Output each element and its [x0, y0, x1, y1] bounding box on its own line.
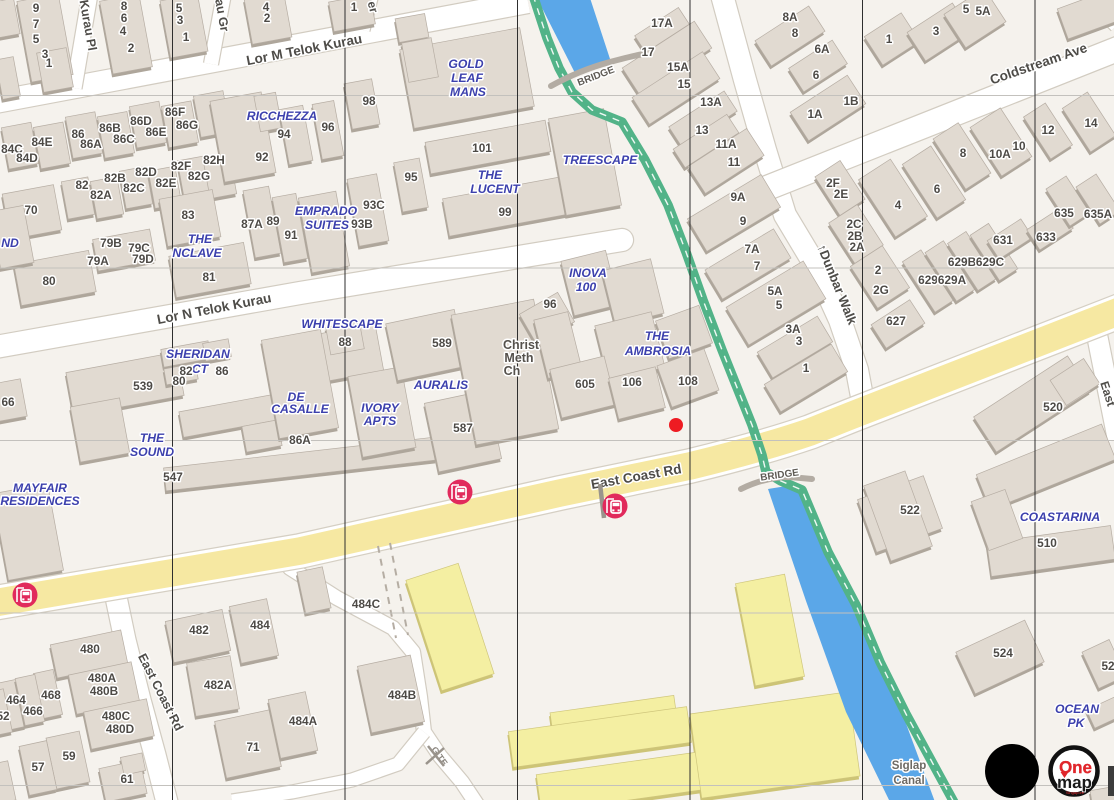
svg-text:84E: 84E — [32, 135, 53, 149]
svg-text:547: 547 — [163, 470, 183, 484]
svg-text:1B: 1B — [843, 94, 858, 108]
svg-text:INOVA: INOVA — [569, 266, 607, 280]
svg-text:THE: THE — [478, 168, 503, 182]
svg-text:3: 3 — [796, 334, 803, 348]
svg-text:THE: THE — [140, 431, 165, 445]
svg-text:8: 8 — [960, 146, 967, 160]
svg-text:480A: 480A — [88, 671, 117, 685]
svg-text:79D: 79D — [132, 252, 154, 266]
svg-text:5: 5 — [776, 298, 783, 312]
svg-text:COASTARINA: COASTARINA — [1020, 510, 1100, 524]
svg-text:605: 605 — [575, 377, 595, 391]
svg-text:2G: 2G — [873, 283, 889, 297]
svg-text:5A: 5A — [767, 284, 783, 298]
svg-text:17: 17 — [641, 45, 655, 59]
svg-text:82A: 82A — [90, 188, 112, 202]
svg-text:84D: 84D — [16, 151, 38, 165]
svg-text:2: 2 — [264, 11, 271, 25]
svg-text:89: 89 — [266, 214, 280, 228]
svg-text:589: 589 — [432, 336, 452, 350]
svg-text:484C: 484C — [352, 597, 381, 611]
svg-text:WHITESCAPE: WHITESCAPE — [301, 317, 383, 331]
svg-text:1: 1 — [351, 0, 358, 14]
svg-text:9A: 9A — [730, 190, 746, 204]
svg-text:11A: 11A — [716, 137, 737, 151]
svg-text:APTS: APTS — [363, 414, 397, 428]
svg-text:4: 4 — [120, 24, 127, 38]
svg-text:EMPRADO: EMPRADO — [295, 204, 358, 218]
svg-text:IVORY: IVORY — [361, 401, 401, 415]
svg-text:6: 6 — [121, 11, 128, 25]
svg-text:Meth: Meth — [504, 351, 533, 365]
svg-text:91: 91 — [284, 228, 298, 242]
svg-text:82H: 82H — [203, 153, 225, 167]
svg-text:83: 83 — [181, 208, 195, 222]
svg-text:15: 15 — [677, 77, 691, 91]
svg-text:11: 11 — [728, 155, 741, 169]
svg-text:THE: THE — [645, 329, 670, 343]
svg-text:82: 82 — [75, 178, 89, 192]
svg-text:95: 95 — [404, 170, 418, 184]
svg-text:1: 1 — [183, 30, 190, 44]
svg-text:94: 94 — [277, 127, 291, 141]
svg-text:108: 108 — [678, 374, 698, 388]
svg-text:86: 86 — [215, 364, 229, 378]
svg-text:LUCENT: LUCENT — [470, 182, 521, 196]
svg-text:12: 12 — [1041, 123, 1055, 137]
svg-text:629: 629 — [918, 273, 938, 287]
svg-text:14: 14 — [1084, 116, 1098, 130]
svg-text:86A: 86A — [80, 137, 102, 151]
svg-text:88: 88 — [338, 335, 352, 349]
svg-text:MANS: MANS — [450, 85, 486, 99]
svg-text:468: 468 — [41, 688, 61, 702]
svg-text:OCEAN: OCEAN — [1055, 702, 1100, 716]
svg-text:80: 80 — [172, 374, 186, 388]
svg-text:SOUND: SOUND — [130, 445, 174, 459]
svg-text:631: 631 — [993, 233, 1013, 247]
svg-text:627: 627 — [886, 314, 906, 328]
svg-text:1: 1 — [803, 361, 810, 375]
svg-text:510: 510 — [1037, 536, 1057, 550]
svg-text:6: 6 — [813, 68, 820, 82]
svg-text:629B: 629B — [948, 255, 976, 269]
svg-text:587: 587 — [453, 421, 473, 435]
svg-text:7: 7 — [754, 259, 761, 273]
svg-text:RICCHEZZA: RICCHEZZA — [247, 109, 317, 123]
svg-text:52: 52 — [1101, 659, 1114, 673]
svg-text:Siglap: Siglap — [892, 760, 927, 772]
svg-text:6A: 6A — [814, 42, 830, 56]
svg-text:17A: 17A — [651, 16, 673, 30]
svg-text:2: 2 — [875, 263, 882, 277]
svg-text:2: 2 — [128, 41, 135, 55]
svg-text:5A: 5A — [975, 4, 991, 18]
svg-text:Singapore: Singapore — [1066, 790, 1085, 795]
svg-text:66: 66 — [1, 395, 15, 409]
svg-text:59: 59 — [62, 749, 76, 763]
svg-text:Christ: Christ — [503, 338, 540, 352]
svg-text:1A: 1A — [807, 107, 823, 121]
svg-text:5: 5 — [33, 32, 40, 46]
svg-text:CASALLE: CASALLE — [271, 402, 329, 416]
svg-text:1: 1 — [886, 32, 893, 46]
svg-text:93C: 93C — [363, 198, 385, 212]
svg-text:86F: 86F — [165, 105, 185, 119]
svg-text:THE: THE — [188, 232, 213, 246]
svg-text:79B: 79B — [100, 236, 122, 250]
svg-text:13: 13 — [695, 123, 709, 137]
svg-text:86G: 86G — [176, 118, 198, 132]
svg-text:TREESCAPE: TREESCAPE — [563, 153, 638, 167]
svg-text:635: 635 — [1054, 206, 1074, 220]
svg-text:484: 484 — [250, 618, 270, 632]
svg-text:57: 57 — [31, 760, 45, 774]
svg-text:87A: 87A — [241, 217, 263, 231]
svg-text:NCLAVE: NCLAVE — [172, 246, 222, 260]
svg-text:79A: 79A — [87, 254, 109, 268]
svg-text:61: 61 — [120, 772, 134, 786]
svg-text:71: 71 — [246, 740, 260, 754]
svg-text:MAYFAIR: MAYFAIR — [13, 481, 67, 495]
svg-text:524: 524 — [993, 646, 1013, 660]
svg-text:52: 52 — [0, 709, 10, 723]
svg-text:9: 9 — [33, 1, 40, 15]
svg-text:3: 3 — [177, 13, 184, 27]
svg-text:101: 101 — [472, 141, 492, 155]
svg-text:GOLD: GOLD — [448, 57, 483, 71]
svg-text:5: 5 — [963, 2, 970, 16]
svg-text:480C: 480C — [102, 709, 131, 723]
svg-text:99: 99 — [498, 205, 512, 219]
svg-text:81: 81 — [202, 270, 216, 284]
svg-text:86C: 86C — [113, 132, 135, 146]
svg-text:13A: 13A — [700, 95, 722, 109]
svg-text:482A: 482A — [204, 678, 233, 692]
svg-text:629C: 629C — [976, 255, 1005, 269]
svg-text:6: 6 — [934, 182, 941, 196]
svg-text:96: 96 — [321, 120, 335, 134]
svg-text:2A: 2A — [849, 240, 865, 254]
svg-text:480D: 480D — [106, 722, 135, 736]
svg-text:86A: 86A — [289, 433, 311, 447]
svg-text:ND: ND — [1, 236, 19, 250]
svg-text:7: 7 — [33, 17, 40, 31]
svg-text:635A: 635A — [1084, 207, 1113, 221]
svg-text:96: 96 — [543, 297, 557, 311]
svg-text:480B: 480B — [90, 684, 118, 698]
svg-text:4: 4 — [895, 198, 902, 212]
svg-text:15A: 15A — [667, 60, 689, 74]
svg-text:484B: 484B — [388, 688, 416, 702]
svg-text:100: 100 — [576, 280, 597, 294]
svg-text:8A: 8A — [782, 10, 798, 24]
svg-text:RESIDENCES: RESIDENCES — [0, 494, 79, 508]
svg-text:82D: 82D — [135, 165, 157, 179]
svg-text:82E: 82E — [156, 176, 177, 190]
svg-text:633: 633 — [1036, 230, 1056, 244]
svg-text:86E: 86E — [146, 125, 167, 139]
svg-text:Canal: Canal — [893, 775, 924, 787]
svg-text:SHERIDAN: SHERIDAN — [166, 347, 231, 361]
svg-text:98: 98 — [362, 94, 376, 108]
svg-text:1: 1 — [46, 56, 53, 70]
svg-text:8: 8 — [792, 26, 799, 40]
svg-text:Ch: Ch — [504, 364, 521, 378]
svg-text:10A: 10A — [989, 147, 1011, 161]
svg-text:92: 92 — [255, 150, 269, 164]
svg-text:106: 106 — [622, 375, 642, 389]
svg-text:10: 10 — [1012, 139, 1026, 153]
svg-text:520: 520 — [1043, 400, 1063, 414]
svg-text:484A: 484A — [289, 714, 318, 728]
svg-text:3: 3 — [933, 24, 940, 38]
svg-text:82C: 82C — [123, 181, 145, 195]
svg-text:82G: 82G — [188, 169, 210, 183]
svg-text:AMBROSIA: AMBROSIA — [624, 344, 691, 358]
svg-text:93B: 93B — [351, 217, 373, 231]
svg-text:466: 466 — [23, 704, 43, 718]
svg-text:629A: 629A — [938, 273, 967, 287]
svg-text:80: 80 — [42, 274, 56, 288]
svg-text:LEAF: LEAF — [451, 71, 483, 85]
svg-text:CT: CT — [192, 362, 210, 376]
svg-text:9: 9 — [740, 214, 747, 228]
svg-text:2E: 2E — [834, 187, 849, 201]
svg-text:480: 480 — [80, 642, 100, 656]
svg-text:AURALIS: AURALIS — [413, 378, 468, 392]
svg-text:539: 539 — [133, 379, 153, 393]
svg-text:SUITES: SUITES — [305, 218, 349, 232]
svg-text:7A: 7A — [744, 242, 760, 256]
svg-text:70: 70 — [24, 203, 38, 217]
svg-text:482: 482 — [189, 623, 209, 637]
svg-text:PK: PK — [1068, 716, 1086, 730]
svg-text:522: 522 — [900, 503, 920, 517]
